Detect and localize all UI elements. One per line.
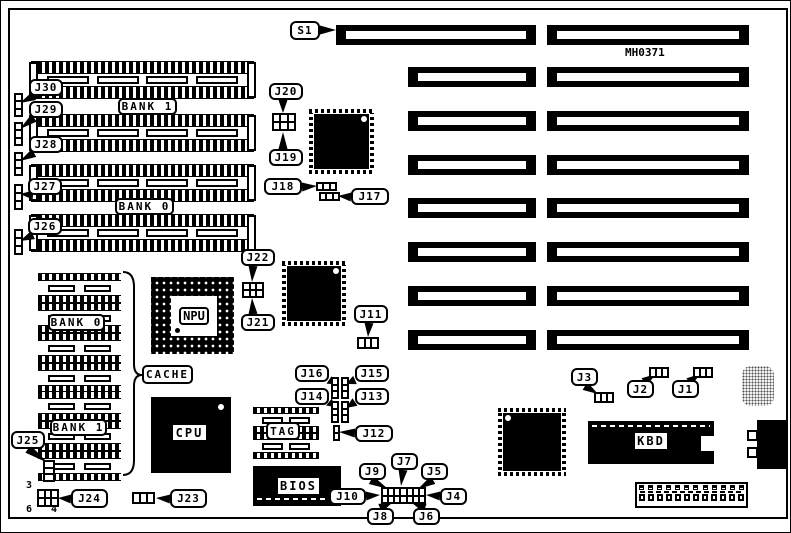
label-tag: TAG [266, 422, 300, 440]
jumper-j13-header [341, 401, 349, 423]
callout-j12: J12 [355, 425, 393, 442]
pin1-dot [333, 268, 339, 274]
callout-j7: J7 [391, 453, 418, 470]
pin1-dot [218, 404, 224, 410]
simm-socket [31, 164, 254, 202]
pin1-dot [505, 415, 511, 421]
dip-socket [38, 333, 121, 363]
callout-j14: J14 [295, 388, 329, 405]
npu-socket: NPU [151, 277, 234, 354]
isa-slot [408, 242, 536, 262]
text-j24-pin-6: 6 [26, 504, 32, 515]
isa-slot [408, 111, 536, 131]
callout-j30: J30 [29, 79, 63, 96]
jumper-j30-header [14, 93, 23, 117]
jumper-j22-header [242, 282, 264, 298]
slot-key [557, 117, 739, 125]
qfp-chip [282, 261, 346, 326]
callout-j3: J3 [571, 368, 598, 386]
callout-j28: J28 [29, 136, 63, 153]
callout-j17: J17 [351, 188, 389, 205]
text-j24-pin-4: 4 [51, 504, 57, 515]
text-j24-pin-3: 3 [26, 480, 32, 491]
qfp-chip [498, 408, 566, 476]
label-bank1-simm: BANK 1 [118, 98, 177, 115]
slot-key [346, 31, 526, 39]
din-connector [757, 420, 788, 469]
slot-key [557, 204, 739, 212]
label-bank0-cache: BANK 0 [48, 314, 105, 331]
jumper-j3-header [594, 392, 614, 403]
jumper-j14-header [331, 401, 339, 423]
label-bank0-simm: BANK 0 [115, 198, 174, 215]
slot-key [557, 161, 739, 169]
simm-socket [31, 214, 254, 252]
isa-slot [547, 155, 749, 175]
isa-slot [408, 67, 536, 87]
slot-key [418, 292, 526, 300]
isa-slot [547, 242, 749, 262]
callout-j2: J2 [627, 380, 654, 398]
jumper-j20-header [272, 113, 296, 131]
jumper-j4-j10-block [381, 487, 426, 504]
simm-socket [31, 61, 254, 99]
callout-j1: J1 [672, 380, 699, 398]
text-part-number: MH0371 [625, 46, 665, 59]
npu-label: NPU [179, 307, 209, 325]
isa-slot [547, 111, 749, 131]
callout-j11: J11 [354, 305, 388, 323]
jumper-j15-header [341, 377, 349, 399]
jumper-j23-header [132, 492, 155, 504]
callout-j4: J4 [440, 488, 467, 505]
jumper-j18-header [316, 182, 337, 191]
callout-j16: J16 [295, 365, 329, 382]
pin1-dot [361, 116, 367, 122]
slot-key [418, 73, 526, 81]
isa-slot [336, 25, 536, 45]
callout-j8: J8 [367, 508, 394, 525]
isa-slot [408, 198, 536, 218]
isa-slot [547, 67, 749, 87]
callout-j20: J20 [269, 83, 303, 100]
bios-label: BIOS [278, 478, 319, 494]
callout-j19: J19 [269, 149, 303, 166]
simm-socket [31, 114, 254, 152]
slot-key [557, 336, 739, 344]
cpu-label: CPU [173, 425, 206, 440]
jumper-j11-header [357, 337, 379, 349]
jumper-j17-header [319, 192, 340, 201]
jumper-j1-header [693, 367, 713, 378]
isa-slot [408, 286, 536, 306]
callout-j21: J21 [241, 314, 275, 331]
callout-j25: J25 [11, 431, 45, 449]
slot-key [418, 336, 526, 344]
slot-key [418, 117, 526, 125]
label-cache: CACHE [142, 365, 193, 384]
dip-socket [38, 391, 121, 421]
power-connector [635, 482, 748, 508]
isa-slot [547, 198, 749, 218]
slot-key [557, 31, 739, 39]
callout-j9: J9 [359, 463, 386, 480]
callout-j10: J10 [329, 488, 366, 505]
jumper-j29-header [14, 122, 23, 146]
chip-notch [701, 436, 714, 451]
dip-socket [38, 363, 121, 393]
callout-j13: J13 [355, 388, 389, 405]
jumper-j12-header [333, 425, 340, 441]
qfp-chip [309, 109, 374, 174]
isa-slot [547, 330, 749, 350]
slot-key [418, 204, 526, 212]
label-bank1-cache: BANK 1 [50, 419, 107, 436]
callout-j15: J15 [355, 365, 389, 382]
isa-slot [408, 330, 536, 350]
jumper-j25-header [43, 460, 55, 482]
slot-key [557, 248, 739, 256]
jumper-j26-header [14, 229, 23, 255]
callout-j27: J27 [28, 178, 62, 195]
isa-slot [547, 286, 749, 306]
jumper-j16-header [331, 377, 339, 399]
callout-j23: J23 [170, 489, 207, 508]
jumper-j27-header [14, 184, 23, 210]
slot-key [557, 73, 739, 81]
callout-j26: J26 [28, 218, 62, 235]
callout-j5: J5 [421, 463, 448, 480]
callout-j6: J6 [413, 508, 440, 525]
slot-key [418, 248, 526, 256]
crystal [742, 366, 774, 406]
kbd-label: KBD [635, 433, 667, 449]
callout-j18: J18 [264, 178, 302, 195]
callout-j29: J29 [29, 101, 63, 118]
callout-s1: S1 [290, 21, 320, 40]
jumper-j28-header [14, 152, 23, 176]
motherboard-diagram: NPUS1J30J29J28J27J26J25J24J23J22J21J20J1… [0, 0, 791, 533]
slot-key [418, 161, 526, 169]
slot-key [557, 292, 739, 300]
callout-j24: J24 [71, 489, 108, 508]
jumper-j2-header [649, 367, 669, 378]
isa-slot [547, 25, 749, 45]
isa-slot [408, 155, 536, 175]
dip-socket [38, 273, 121, 303]
callout-j22: J22 [241, 249, 275, 266]
pin1-dot [175, 328, 180, 333]
